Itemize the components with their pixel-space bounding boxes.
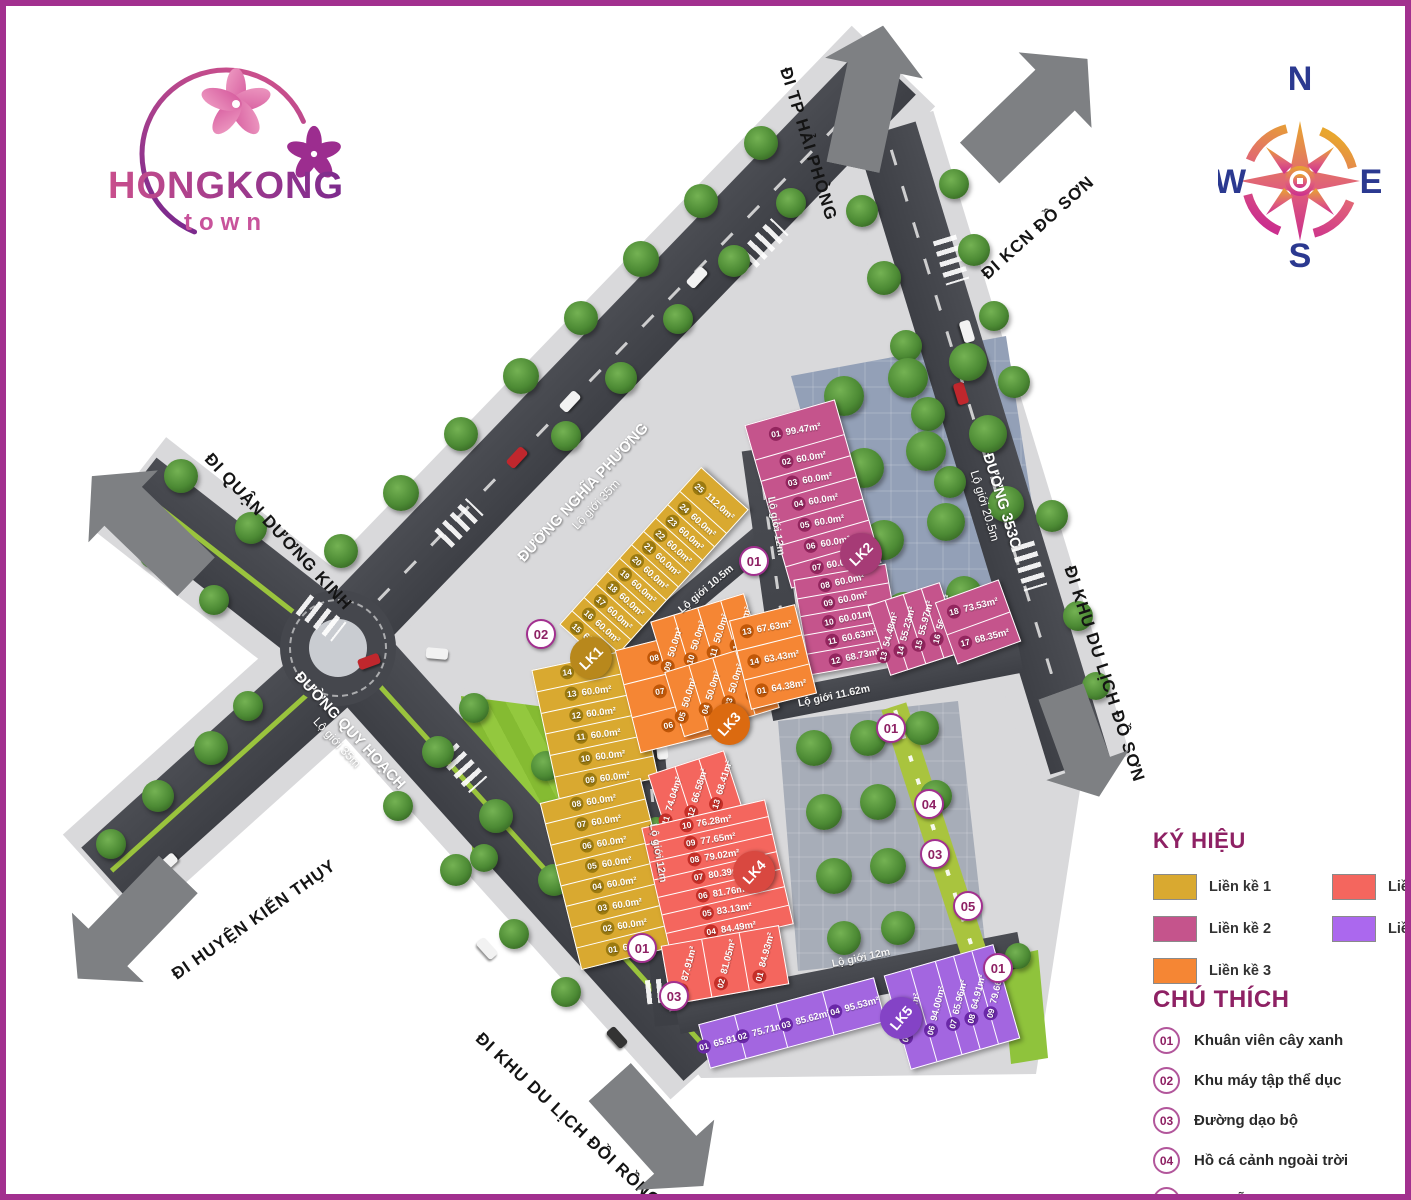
tree [911, 397, 945, 431]
tree [684, 184, 718, 218]
legend-swatch-lk2 [1153, 916, 1197, 942]
marker-green-area: 01 [876, 713, 906, 743]
tree [939, 169, 969, 199]
tree [551, 421, 581, 451]
lot-label: 0495.53m² [827, 993, 881, 1020]
legend-swatch-lk5 [1332, 916, 1376, 942]
tree [564, 301, 598, 335]
tree [718, 245, 750, 277]
note-item: 04Hồ cá cảnh ngoài trời [1153, 1147, 1348, 1174]
label-di-kcn-do-son: ĐI KCN ĐỒ SƠN [978, 172, 1099, 284]
legend-item-lk2: Liền kề 2 [1153, 912, 1304, 946]
tree [96, 829, 126, 859]
legend-swatch-lk1 [1153, 874, 1197, 900]
lot-label: 1463.43m² [746, 646, 800, 669]
legend-item-lk3: Liền kề 3 [1153, 954, 1304, 988]
tree [383, 475, 419, 511]
master-plan-canvas: 1560.0m²1660.0m²1760.0m²1860.0m²1960.0m²… [0, 0, 1411, 1200]
lot-label: 1367.63m² [739, 617, 793, 640]
tree [503, 358, 539, 394]
tree [623, 241, 659, 277]
tree [905, 711, 939, 745]
tree [440, 854, 472, 886]
marker-walking-path: 03 [659, 981, 689, 1011]
note-number: 03 [1153, 1107, 1180, 1134]
tree [867, 261, 901, 295]
lot-label: 1368.41m² [707, 759, 736, 813]
note-number: 04 [1153, 1147, 1180, 1174]
legend-label: Liền kề 5 [1388, 921, 1411, 937]
tree [888, 358, 928, 398]
tree [934, 466, 966, 498]
note-item: 03Đường dạo bộ [1153, 1107, 1348, 1134]
compass-rose-icon: N E S W [1218, 56, 1383, 271]
legend-panel: KÝ HIỆU Liền kề 1 Liền kề 2 Liền kề 3 Li… [1153, 828, 1411, 988]
tree [827, 921, 861, 955]
marker-fish-pond: 04 [914, 789, 944, 819]
compass-north: N [1288, 60, 1313, 98]
lot-label: 0281.05m² [712, 938, 739, 992]
logo-title: HONGKONG [108, 165, 344, 207]
lot-label: 0184.93m² [750, 931, 777, 985]
legend-item-lk1: Liền kề 1 [1153, 870, 1304, 904]
tree [164, 459, 198, 493]
tree [499, 919, 529, 949]
lot-label: 0164.38m² [753, 675, 807, 698]
note-number: 01 [1153, 1027, 1180, 1054]
note-label: Đường dạo bộ [1194, 1112, 1298, 1129]
lot-label: 0199.47m² [768, 419, 822, 442]
tree [949, 343, 987, 381]
marker-parking: 05 [953, 891, 983, 921]
legend-swatch-lk3 [1153, 958, 1197, 984]
tree [194, 731, 228, 765]
legend-item-lk4: Liền kề 4 [1332, 870, 1411, 904]
marker-gym-area: 02 [526, 619, 556, 649]
tree [459, 693, 489, 723]
tree [324, 534, 358, 568]
tree [470, 844, 498, 872]
tree [605, 362, 637, 394]
note-item: 05Khu đỗ xe [1153, 1187, 1348, 1200]
note-label: Khu đỗ xe [1194, 1192, 1267, 1200]
tree [816, 858, 852, 894]
note-label: Khu máy tập thể dục [1194, 1072, 1342, 1089]
tree [846, 195, 878, 227]
marker-walking-path: 03 [920, 839, 950, 869]
legend-items: Liền kề 1 Liền kề 2 Liền kề 3 Liền kề 4 … [1153, 870, 1411, 988]
car [426, 647, 449, 660]
compass-west: W [1218, 163, 1247, 201]
note-number: 02 [1153, 1067, 1180, 1094]
note-number: 05 [1153, 1187, 1180, 1200]
arrow-di-kcn-do-son [943, 21, 1124, 201]
tree [233, 691, 263, 721]
legend-swatch-lk4 [1332, 874, 1376, 900]
lot-label: 1768.35m² [957, 625, 1011, 651]
note-label: Hồ cá cảnh ngoài trời [1194, 1152, 1348, 1169]
marker-green-area: 01 [627, 933, 657, 963]
logo-subtitle: town [184, 209, 268, 236]
marker-green-area: 01 [983, 953, 1013, 983]
tree [998, 366, 1030, 398]
note-item: 01Khuân viên cây xanh [1153, 1027, 1348, 1054]
tree [199, 585, 229, 615]
tree [663, 304, 693, 334]
legend-label: Liền kề 1 [1209, 879, 1271, 895]
tree [860, 784, 896, 820]
hongkong-town-logo: HONGKONG town [86, 46, 366, 246]
tree [881, 911, 915, 945]
legend-label: Liền kề 3 [1209, 963, 1271, 979]
note-item: 02Khu máy tập thể dục [1153, 1067, 1348, 1094]
tree [142, 780, 174, 812]
tree [479, 799, 513, 833]
tree [744, 126, 778, 160]
tree [806, 794, 842, 830]
car [476, 937, 499, 961]
legend-label: Liền kề 4 [1388, 879, 1411, 895]
legend-title: KÝ HIỆU [1153, 828, 1411, 854]
tree [927, 503, 965, 541]
note-label: Khuân viên cây xanh [1194, 1032, 1343, 1049]
tree [979, 301, 1009, 331]
compass-east: E [1360, 163, 1383, 201]
legend-item-lk5: Liền kề 5 [1332, 912, 1411, 946]
tree [906, 431, 946, 471]
tree [444, 417, 478, 451]
tree [551, 977, 581, 1007]
lot-label: 0385.62m² [778, 1006, 832, 1033]
tree [422, 736, 454, 768]
tree [1036, 500, 1068, 532]
tree [870, 848, 906, 884]
legend-label: Liền kề 2 [1209, 921, 1271, 937]
tree [796, 730, 832, 766]
notes-items: 01Khuân viên cây xanh 02Khu máy tập thể … [1153, 1027, 1348, 1200]
marker-green-area: 01 [739, 546, 769, 576]
tree [969, 415, 1007, 453]
notes-panel: CHÚ THÍCH 01Khuân viên cây xanh 02Khu má… [1153, 986, 1348, 1200]
compass-south: S [1289, 237, 1312, 271]
notes-title: CHÚ THÍCH [1153, 986, 1348, 1014]
tree [776, 188, 806, 218]
